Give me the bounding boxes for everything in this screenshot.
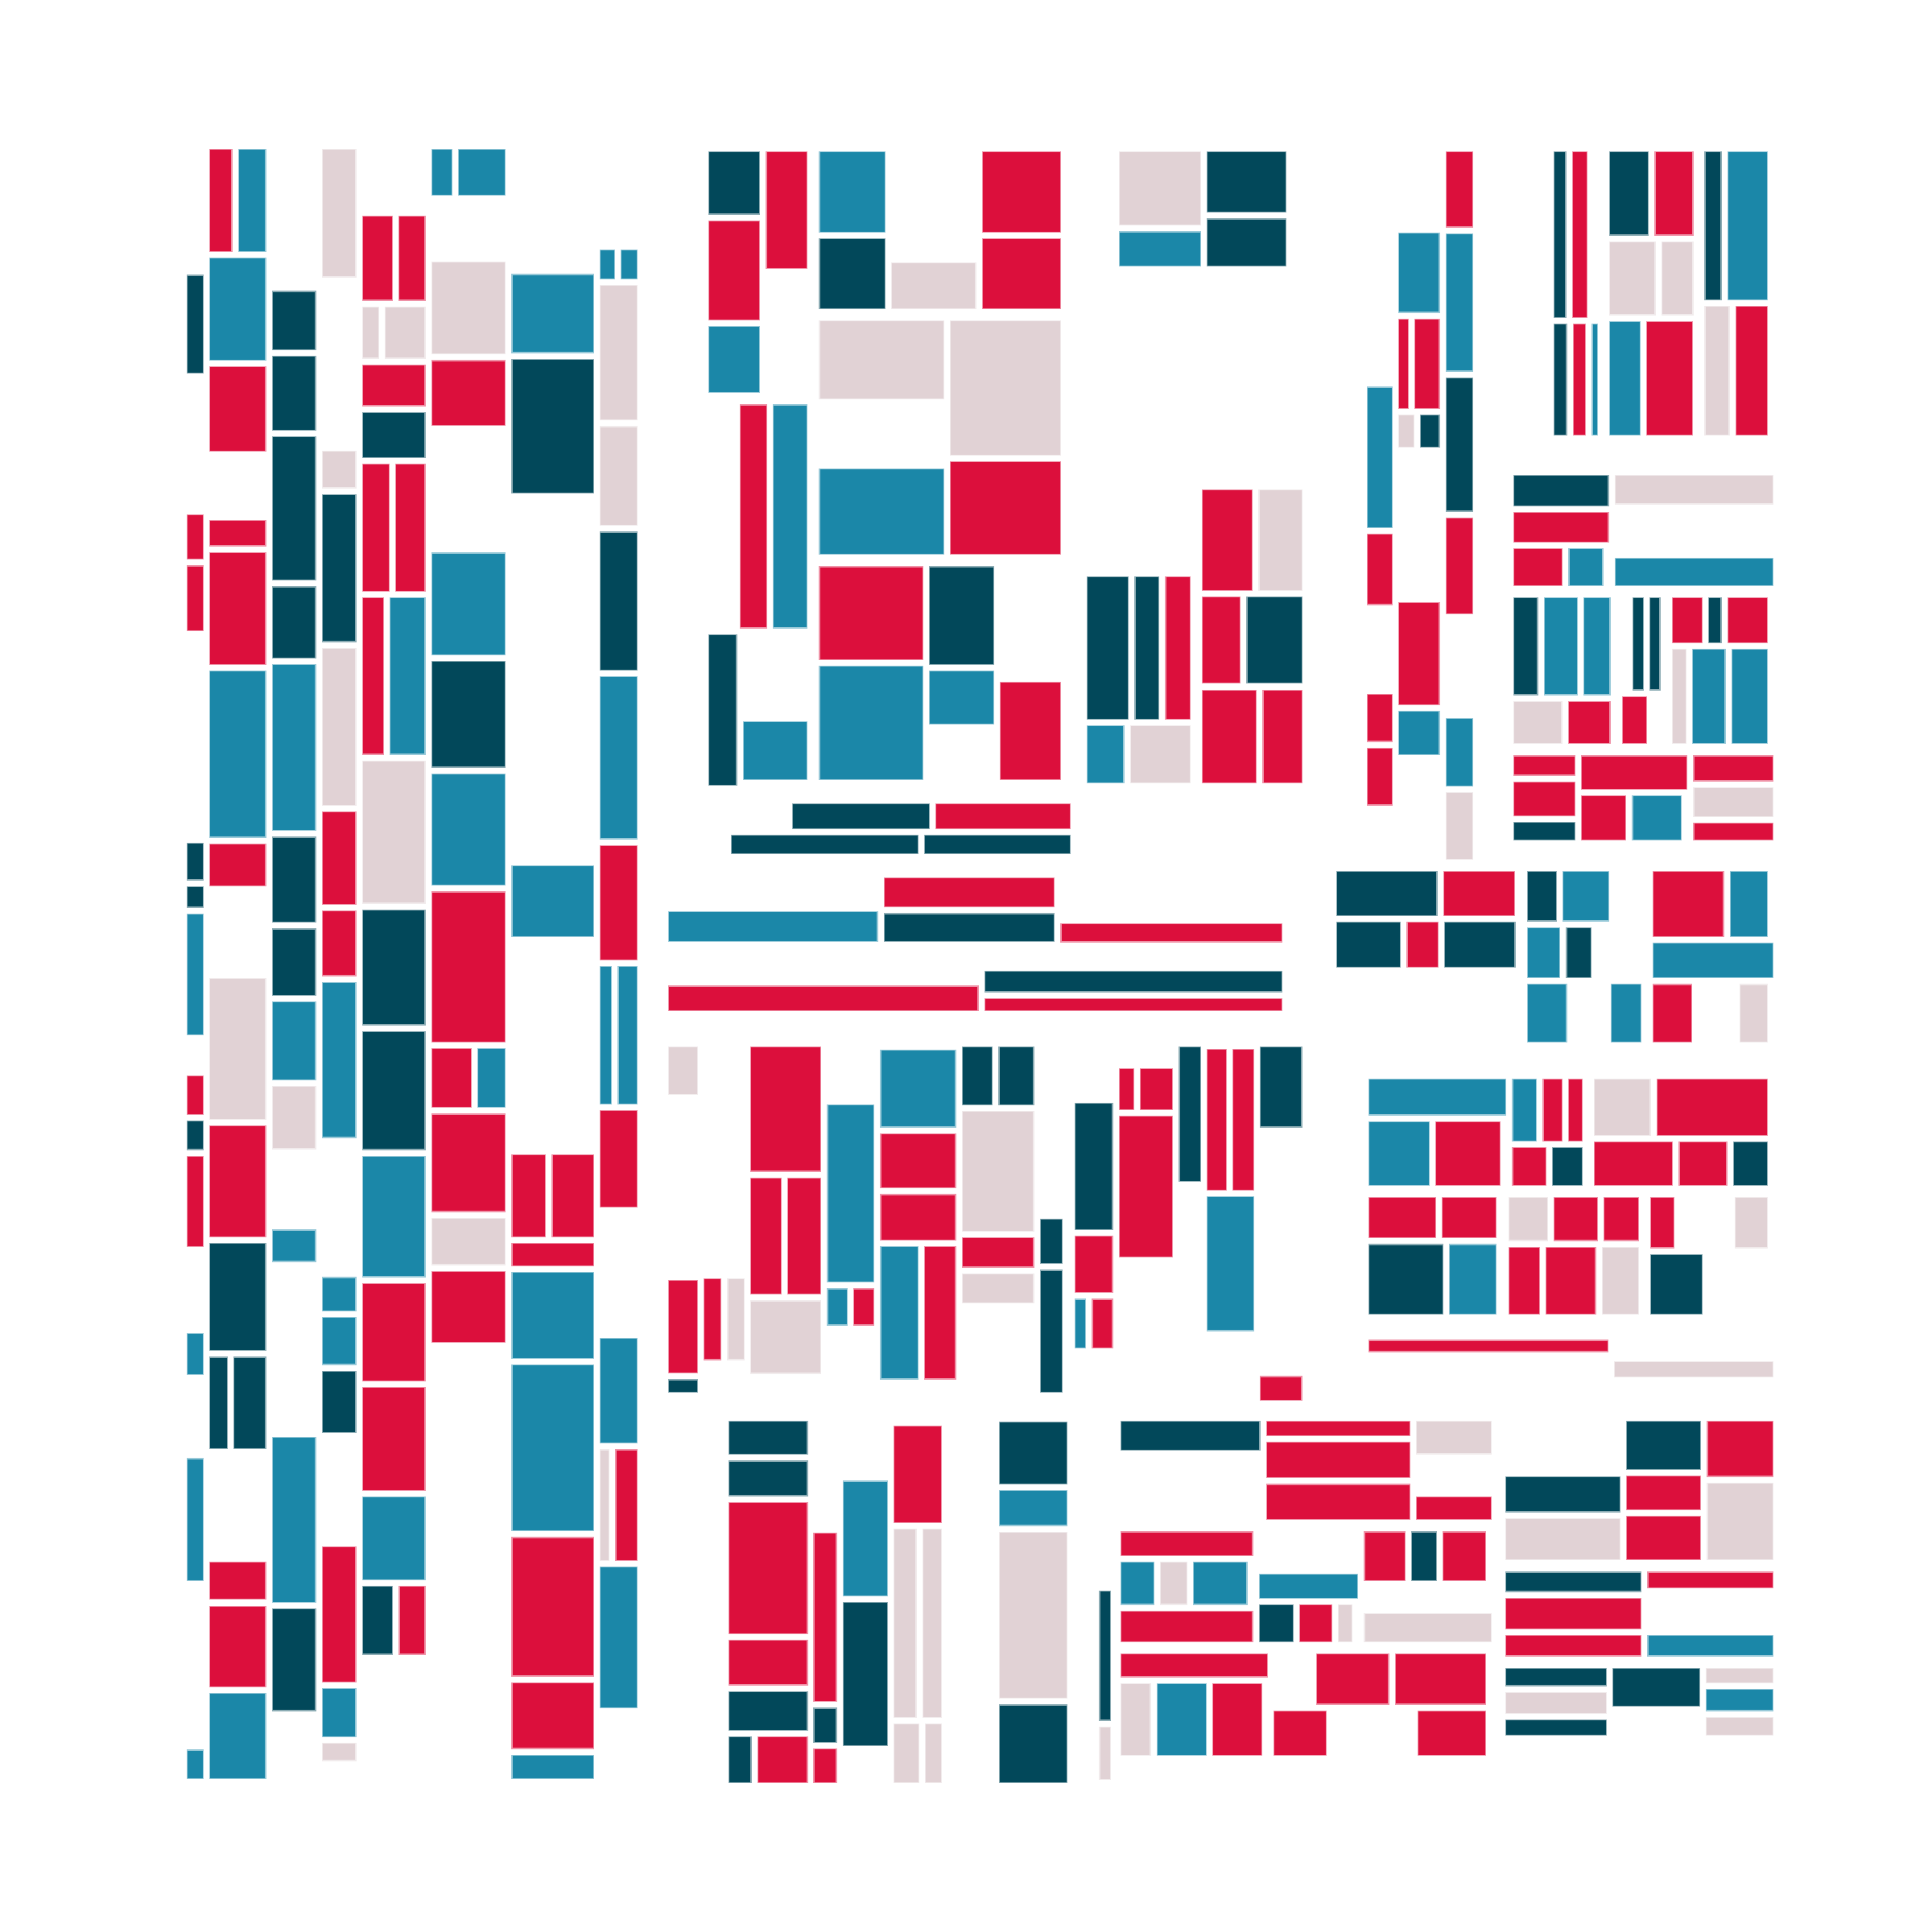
mosaic-tile xyxy=(431,1048,473,1108)
mosaic-tile xyxy=(1075,1236,1113,1293)
mosaic-tile xyxy=(272,1086,316,1149)
mosaic-tile xyxy=(1646,321,1693,436)
panel-right-band-1 xyxy=(1336,871,1773,1042)
mosaic-tile xyxy=(1505,1518,1620,1561)
mosaic-tile xyxy=(729,1691,808,1731)
mosaic-tile xyxy=(708,634,737,786)
mosaic-svg xyxy=(0,0,1932,1932)
mosaic-tile xyxy=(322,451,357,489)
mosaic-tile xyxy=(1566,927,1591,979)
mosaic-tile xyxy=(1262,690,1302,784)
mosaic-tile xyxy=(1626,1516,1701,1561)
mosaic-tile xyxy=(1662,242,1694,316)
mosaic-tile xyxy=(1140,1068,1173,1110)
mosaic-tile xyxy=(1446,151,1474,228)
mosaic-tile xyxy=(1626,1476,1701,1510)
mosaic-tile xyxy=(209,1693,266,1779)
mosaic-tile xyxy=(1735,1197,1768,1249)
panel-mid-rows xyxy=(731,803,1071,854)
mosaic-tile xyxy=(750,1178,782,1295)
mosaic-tile xyxy=(884,913,1055,942)
panel-right-column xyxy=(1367,151,1473,860)
mosaic-tile xyxy=(1266,1484,1410,1520)
mosaic-tile xyxy=(1259,1604,1294,1642)
mosaic-tile xyxy=(1707,1483,1773,1561)
mosaic-tile xyxy=(1207,1196,1254,1331)
mosaic-tile xyxy=(792,803,931,829)
mosaic-tile xyxy=(1416,1421,1492,1455)
mosaic-tile xyxy=(398,216,426,301)
mosaic-tile xyxy=(209,1125,266,1237)
mosaic-tile xyxy=(1316,1653,1389,1705)
mosaic-tile xyxy=(362,464,390,592)
mosaic-tile xyxy=(1609,151,1649,236)
mosaic-tile xyxy=(891,262,976,310)
mosaic-tile xyxy=(704,1278,721,1360)
mosaic-tile xyxy=(272,1437,316,1603)
mosaic-tile xyxy=(1119,1068,1134,1110)
mosaic-tile xyxy=(843,1602,888,1746)
mosaic-tile xyxy=(615,1449,638,1561)
mosaic-tile xyxy=(1336,922,1401,968)
mosaic-tile xyxy=(600,676,638,839)
mosaic-tile xyxy=(1505,1635,1641,1657)
mosaic-tile xyxy=(1707,1421,1773,1477)
mosaic-tile xyxy=(1513,475,1609,506)
mosaic-tile xyxy=(600,966,612,1104)
mosaic-tile xyxy=(925,1724,942,1783)
mosaic-tile xyxy=(1527,984,1567,1042)
mosaic-tile xyxy=(819,666,923,780)
mosaic-tile xyxy=(1212,1683,1262,1757)
mosaic-tile xyxy=(1160,1562,1187,1605)
mosaic-tile xyxy=(1554,1197,1598,1241)
mosaic-tile xyxy=(272,1608,316,1711)
mosaic-tile xyxy=(729,1736,752,1783)
mosaic-tile xyxy=(729,1640,808,1686)
mosaic-tile xyxy=(766,151,807,269)
mosaic-tile xyxy=(362,910,426,1026)
mosaic-tile xyxy=(819,320,943,399)
mosaic-tile xyxy=(1505,1668,1607,1686)
mosaic-tile xyxy=(322,811,357,905)
mosaic-tile xyxy=(985,971,1282,993)
mosaic-tile xyxy=(617,966,638,1104)
mosaic-tile xyxy=(1706,1689,1773,1711)
mosaic-tile xyxy=(853,1288,874,1325)
mosaic-tile xyxy=(787,1178,822,1295)
mosaic-tile xyxy=(1202,690,1257,784)
mosaic-tile xyxy=(894,1426,943,1523)
mosaic-tile xyxy=(1657,1079,1768,1136)
mosaic-tile xyxy=(999,1422,1067,1484)
mosaic-tile xyxy=(322,910,357,976)
mosaic-tile xyxy=(1367,386,1393,528)
mosaic-tile xyxy=(962,1111,1034,1232)
mosaic-tile xyxy=(1704,306,1729,436)
mosaic-tile xyxy=(390,597,426,755)
mosaic-tile xyxy=(187,914,204,1036)
mosaic-tile xyxy=(209,520,266,546)
mosaic-tile xyxy=(1336,871,1438,916)
mosaic-tile xyxy=(1512,1147,1546,1186)
mosaic-tile xyxy=(209,149,233,252)
mosaic-tile xyxy=(1602,1247,1640,1315)
mosaic-tile xyxy=(1416,1496,1492,1520)
mosaic-tile xyxy=(1207,218,1286,266)
mosaic-tile xyxy=(1232,1049,1254,1191)
mosaic-tile xyxy=(1398,415,1414,448)
mosaic-tile xyxy=(458,149,506,196)
mosaic-tile xyxy=(1060,923,1282,943)
mosaic-tile xyxy=(431,149,453,196)
mosaic-tile xyxy=(1368,1079,1506,1116)
mosaic-tile xyxy=(209,1562,266,1600)
mosaic-tile xyxy=(729,1460,808,1496)
mosaic-tile xyxy=(187,1156,204,1247)
mosaic-tile xyxy=(1509,1247,1541,1315)
mosaic-tile xyxy=(819,238,885,309)
mosaic-tile xyxy=(708,326,760,393)
mosaic-tile xyxy=(1398,319,1409,409)
mosaic-tile xyxy=(431,1271,506,1344)
mosaic-tile xyxy=(813,1707,836,1743)
mosaic-tile xyxy=(999,1704,1067,1783)
mosaic-tile xyxy=(1000,682,1061,780)
mosaic-tile xyxy=(999,1490,1067,1525)
mosaic-tile xyxy=(1157,1683,1207,1757)
mosaic-tile xyxy=(209,978,266,1120)
mosaic-tile xyxy=(1649,597,1661,691)
artwork-canvas xyxy=(0,0,1932,1932)
mosaic-tile xyxy=(362,1283,426,1382)
panel-bottom-left-cols xyxy=(729,1421,1111,1783)
mosaic-tile xyxy=(827,1288,848,1325)
panel-center-right-cols xyxy=(1075,1046,1302,1401)
mosaic-tile xyxy=(880,1194,956,1241)
mosaic-tile xyxy=(1653,943,1773,978)
mosaic-tile xyxy=(322,1317,357,1365)
mosaic-tile xyxy=(1121,1421,1261,1451)
mosaic-tile xyxy=(727,1278,745,1360)
mosaic-tile xyxy=(1446,378,1474,512)
mosaic-tile xyxy=(322,648,357,807)
mosaic-tile xyxy=(1444,922,1515,968)
mosaic-tile xyxy=(209,1356,228,1449)
mosaic-tile xyxy=(1581,755,1687,790)
mosaic-tile xyxy=(1513,782,1575,817)
mosaic-tile xyxy=(1446,233,1474,372)
mosaic-tile xyxy=(1367,534,1393,605)
mosaic-tile xyxy=(708,151,760,215)
mosaic-tile xyxy=(740,404,767,628)
mosaic-tile xyxy=(1075,1298,1086,1348)
mosaic-tile xyxy=(1650,1197,1674,1249)
mosaic-tile xyxy=(1591,324,1598,436)
mosaic-tile xyxy=(362,1496,426,1580)
mosaic-tile xyxy=(511,359,594,493)
mosaic-tile xyxy=(431,661,506,768)
panel-center-columns xyxy=(668,1046,1063,1393)
mosaic-tile xyxy=(1693,787,1773,817)
mosaic-tile xyxy=(1736,306,1768,436)
mosaic-tile xyxy=(1420,415,1439,448)
mosaic-tile xyxy=(187,275,204,374)
mosaic-tile xyxy=(1654,151,1693,236)
mosaic-tile xyxy=(600,250,615,279)
mosaic-tile xyxy=(1614,1361,1773,1377)
mosaic-tile xyxy=(929,671,994,724)
mosaic-tile xyxy=(1583,597,1611,696)
mosaic-tile xyxy=(1728,151,1768,300)
mosaic-tile xyxy=(1513,597,1538,696)
mosaic-tile xyxy=(431,774,506,886)
mosaic-tile xyxy=(923,1529,943,1718)
mosaic-tile xyxy=(1653,984,1692,1042)
mosaic-tile xyxy=(431,1113,506,1212)
mosaic-tile xyxy=(187,1333,204,1375)
mosaic-tile xyxy=(1609,321,1641,436)
mosaic-tile xyxy=(1604,1197,1639,1241)
mosaic-tile xyxy=(1728,597,1768,643)
mosaic-tile xyxy=(1505,1598,1641,1629)
mosaic-tile xyxy=(1121,1653,1268,1677)
mosaic-tile xyxy=(322,1743,357,1761)
mosaic-tile xyxy=(668,911,878,942)
mosaic-tile xyxy=(187,565,204,630)
mosaic-tile xyxy=(1260,1376,1302,1401)
mosaic-tile xyxy=(209,366,266,452)
mosaic-tile xyxy=(209,258,266,361)
mosaic-tile xyxy=(1513,822,1575,840)
mosaic-tile xyxy=(1594,1079,1651,1136)
mosaic-tile xyxy=(187,843,204,881)
mosaic-tile xyxy=(551,1154,594,1237)
mosaic-tile xyxy=(1672,597,1703,643)
mosaic-tile xyxy=(750,1300,821,1373)
mosaic-tile xyxy=(843,1480,888,1596)
mosaic-tile xyxy=(1647,1571,1773,1587)
mosaic-tile xyxy=(819,566,923,660)
mosaic-tile xyxy=(187,1075,204,1116)
mosaic-tile xyxy=(1134,576,1159,720)
mosaic-tile xyxy=(511,1755,594,1779)
mosaic-tile xyxy=(511,1682,594,1749)
mosaic-tile xyxy=(1367,694,1393,742)
mosaic-tile xyxy=(1568,548,1603,586)
mosaic-tile xyxy=(209,1606,266,1688)
mosaic-tile xyxy=(1364,1613,1492,1643)
mosaic-tile xyxy=(1368,1244,1443,1315)
mosaic-tile xyxy=(1693,823,1773,840)
mosaic-tile xyxy=(1446,792,1474,860)
mosaic-tile xyxy=(880,1246,919,1379)
mosaic-tile xyxy=(1121,1683,1151,1757)
mosaic-tile xyxy=(1706,1717,1773,1736)
mosaic-tile xyxy=(1411,1531,1437,1581)
mosaic-tile xyxy=(362,597,384,755)
mosaic-tile xyxy=(1406,922,1439,968)
mosaic-tile xyxy=(1513,701,1563,745)
mosaic-tile xyxy=(1512,1079,1537,1141)
mosaic-tile xyxy=(668,1046,698,1095)
mosaic-tile xyxy=(1650,1254,1703,1315)
mosaic-tile xyxy=(1119,231,1201,266)
mosaic-tile xyxy=(1509,1197,1548,1241)
mosaic-tile xyxy=(272,664,316,832)
mosaic-tile xyxy=(209,552,266,666)
mosaic-tile xyxy=(1611,984,1641,1042)
mosaic-tile xyxy=(894,1724,919,1783)
mosaic-tile xyxy=(362,307,379,359)
mosaic-tile xyxy=(322,1546,357,1682)
mosaic-tile xyxy=(1398,711,1440,755)
mosaic-tile xyxy=(1367,748,1393,806)
mosaic-tile xyxy=(431,552,506,655)
panel-mid-top-right-upper xyxy=(1119,151,1286,266)
mosaic-tile xyxy=(1513,548,1563,586)
mosaic-tile xyxy=(1544,597,1578,696)
mosaic-tile xyxy=(1568,701,1611,745)
mosaic-tile xyxy=(1581,795,1627,840)
mosaic-tile xyxy=(362,412,426,458)
mosaic-tile xyxy=(819,469,943,555)
mosaic-tile xyxy=(431,891,506,1042)
mosaic-tile xyxy=(1338,1604,1352,1642)
mosaic-tile xyxy=(1121,1562,1154,1605)
mosaic-tile xyxy=(884,877,1055,907)
mosaic-tile xyxy=(743,721,808,780)
mosaic-tile xyxy=(1693,755,1773,781)
mosaic-tile xyxy=(1443,871,1516,916)
mosaic-tile xyxy=(1368,1121,1430,1186)
mosaic-tile xyxy=(1398,233,1440,313)
panel-mid-top-right xyxy=(1087,489,1302,783)
mosaic-tile xyxy=(1266,1421,1410,1436)
mosaic-tile xyxy=(1632,795,1682,840)
mosaic-tile xyxy=(1653,871,1724,937)
mosaic-tile xyxy=(511,1243,594,1266)
mosaic-tile xyxy=(827,1104,874,1282)
mosaic-tile xyxy=(1647,1635,1773,1657)
mosaic-tile xyxy=(962,1046,993,1105)
mosaic-tile xyxy=(1554,151,1567,318)
mosaic-tile xyxy=(362,761,426,904)
mosaic-tile xyxy=(1414,319,1440,409)
mosaic-tile xyxy=(209,844,266,886)
mosaic-tile xyxy=(758,1736,808,1783)
mosaic-tile xyxy=(998,1046,1034,1105)
mosaic-tile xyxy=(668,1379,698,1393)
mosaic-tile xyxy=(322,982,357,1138)
mosaic-tile xyxy=(322,1371,357,1434)
mosaic-tile xyxy=(362,1387,426,1491)
mosaic-tile xyxy=(272,356,316,431)
mosaic-tile xyxy=(1202,597,1241,683)
mosaic-tile xyxy=(1435,1121,1501,1186)
panel-left-columns xyxy=(187,149,638,1779)
mosaic-tile xyxy=(950,461,1061,555)
mosaic-tile xyxy=(187,1121,204,1150)
mosaic-tile xyxy=(209,671,266,837)
mosaic-tile xyxy=(1087,725,1125,783)
mosaic-tile xyxy=(999,1532,1067,1699)
mosaic-tile xyxy=(1594,1141,1674,1186)
mosaic-tile xyxy=(322,1277,357,1311)
mosaic-tile xyxy=(511,1364,594,1531)
mosaic-tile xyxy=(1299,1604,1332,1642)
mosaic-tile xyxy=(600,531,638,671)
mosaic-tile xyxy=(1266,1442,1410,1478)
mosaic-tile xyxy=(982,238,1062,309)
mosaic-tile xyxy=(1259,1574,1359,1600)
mosaic-tile xyxy=(272,586,316,658)
mosaic-tile xyxy=(1446,518,1474,615)
mosaic-tile xyxy=(1692,649,1726,745)
mosaic-tile xyxy=(1179,1046,1201,1182)
mosaic-tile xyxy=(950,320,1061,456)
mosaic-tile xyxy=(668,985,979,1011)
mosaic-tile xyxy=(1573,324,1587,436)
mosaic-tile xyxy=(985,998,1282,1011)
mosaic-tile xyxy=(1121,1531,1253,1556)
mosaic-tile xyxy=(1099,1591,1111,1721)
mosaic-tile xyxy=(1207,151,1286,213)
mosaic-tile xyxy=(1202,489,1253,591)
mosaic-tile xyxy=(600,1338,638,1444)
panel-mid-top-blocks xyxy=(708,151,1061,786)
mosaic-tile xyxy=(1678,1141,1727,1186)
mosaic-tile xyxy=(272,436,316,580)
mosaic-tile xyxy=(731,835,919,854)
mosaic-tile xyxy=(1546,1247,1596,1315)
mosaic-tile xyxy=(511,1537,594,1676)
mosaic-tile xyxy=(1732,649,1768,745)
mosaic-tile xyxy=(1075,1103,1113,1230)
mosaic-tile xyxy=(272,928,316,996)
mosaic-tile xyxy=(924,1246,956,1379)
mosaic-tile xyxy=(1704,151,1721,300)
mosaic-tile xyxy=(477,1048,506,1108)
mosaic-tile xyxy=(322,494,357,642)
mosaic-tile xyxy=(1672,649,1686,745)
mosaic-tile xyxy=(511,865,594,937)
mosaic-tile xyxy=(398,1586,425,1655)
mosaic-tile xyxy=(362,365,426,407)
mosaic-tile xyxy=(1364,1531,1406,1581)
mosaic-tile xyxy=(362,1156,426,1278)
mosaic-tile xyxy=(1119,1116,1174,1257)
mosaic-tile xyxy=(1513,512,1609,543)
mosaic-tile xyxy=(1740,984,1768,1042)
mosaic-tile xyxy=(1552,1147,1583,1186)
mosaic-tile xyxy=(362,1586,394,1655)
mosaic-tile xyxy=(1121,1611,1253,1643)
mosaic-tile xyxy=(729,1421,808,1455)
mosaic-tile xyxy=(600,426,638,526)
mosaic-tile xyxy=(1446,718,1474,786)
mosaic-tile xyxy=(1099,1727,1111,1781)
mosaic-tile xyxy=(962,1274,1034,1304)
mosaic-tile xyxy=(1513,755,1575,775)
mosaic-tile xyxy=(1040,1269,1063,1393)
mosaic-tile xyxy=(187,886,204,908)
mosaic-tile xyxy=(322,149,357,278)
mosaic-tile xyxy=(272,1229,316,1261)
mosaic-tile xyxy=(1527,927,1561,979)
mosaic-tile xyxy=(511,1272,594,1359)
mosaic-tile xyxy=(187,1458,204,1581)
